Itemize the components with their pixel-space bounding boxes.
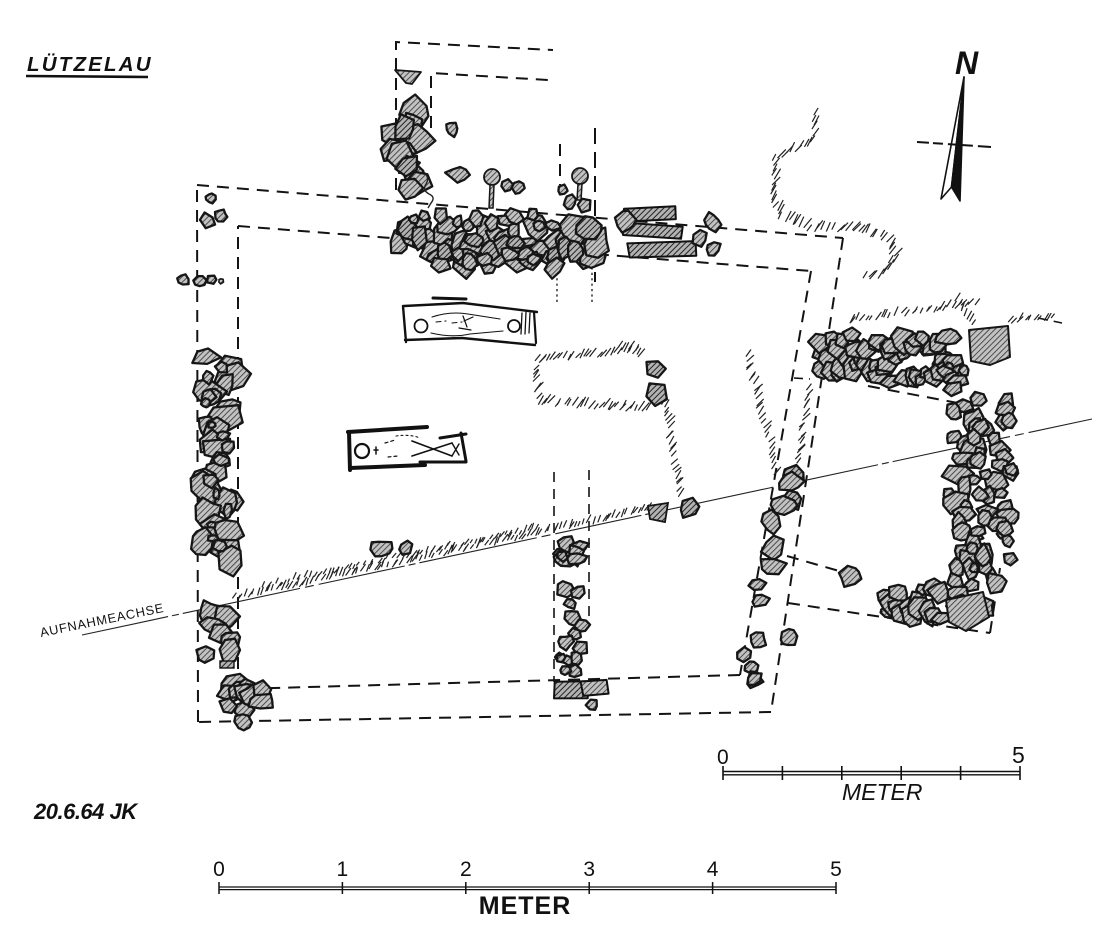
svg-text:METER: METER <box>479 892 572 920</box>
svg-text:5: 5 <box>1012 742 1025 768</box>
svg-text:2: 2 <box>460 858 472 881</box>
svg-text:N: N <box>955 45 979 81</box>
svg-text:5: 5 <box>830 858 842 881</box>
svg-text:0: 0 <box>213 858 225 881</box>
svg-text:1: 1 <box>337 858 349 881</box>
svg-text:20.6.64 JK: 20.6.64 JK <box>33 799 139 824</box>
svg-text:0: 0 <box>717 746 729 769</box>
svg-text:AUFNAHMEACHSE: AUFNAHMEACHSE <box>39 600 166 640</box>
svg-text:3: 3 <box>583 858 595 881</box>
svg-text:METER: METER <box>842 779 923 805</box>
svg-text:LÜTZELAU: LÜTZELAU <box>27 53 153 76</box>
svg-text:4: 4 <box>707 858 719 881</box>
